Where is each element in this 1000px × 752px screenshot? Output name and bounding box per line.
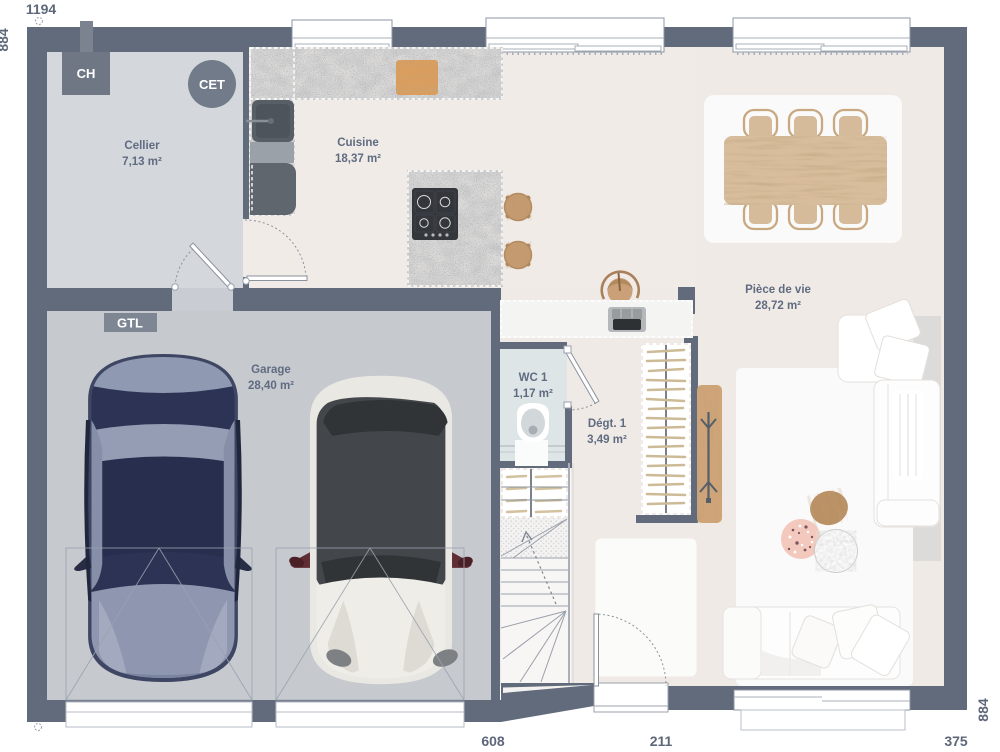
svg-text:884: 884 [975, 698, 991, 722]
svg-text:7,13 m²: 7,13 m² [122, 156, 162, 168]
svg-text:Cellier: Cellier [124, 140, 160, 152]
svg-text:Garage: Garage [251, 364, 291, 376]
svg-text:GTL: GTL [117, 316, 143, 331]
svg-text:884: 884 [0, 28, 11, 52]
svg-text:28,40 m²: 28,40 m² [248, 380, 294, 392]
svg-text:3,49 m²: 3,49 m² [587, 434, 627, 446]
svg-text:Cuisine: Cuisine [337, 137, 379, 149]
svg-text:375: 375 [944, 733, 968, 749]
svg-text:1194: 1194 [26, 1, 57, 17]
svg-text:28,72 m²: 28,72 m² [755, 300, 801, 312]
svg-text:CH: CH [77, 66, 96, 81]
svg-text:Pièce de vie: Pièce de vie [745, 284, 811, 296]
svg-text:211: 211 [650, 733, 673, 749]
svg-text:CET: CET [199, 77, 225, 92]
svg-text:Dégt. 1: Dégt. 1 [588, 418, 627, 430]
svg-text:18,37 m²: 18,37 m² [335, 153, 381, 165]
svg-text:WC 1: WC 1 [519, 372, 548, 384]
svg-text:608: 608 [481, 733, 505, 749]
svg-text:1,17 m²: 1,17 m² [513, 388, 553, 400]
